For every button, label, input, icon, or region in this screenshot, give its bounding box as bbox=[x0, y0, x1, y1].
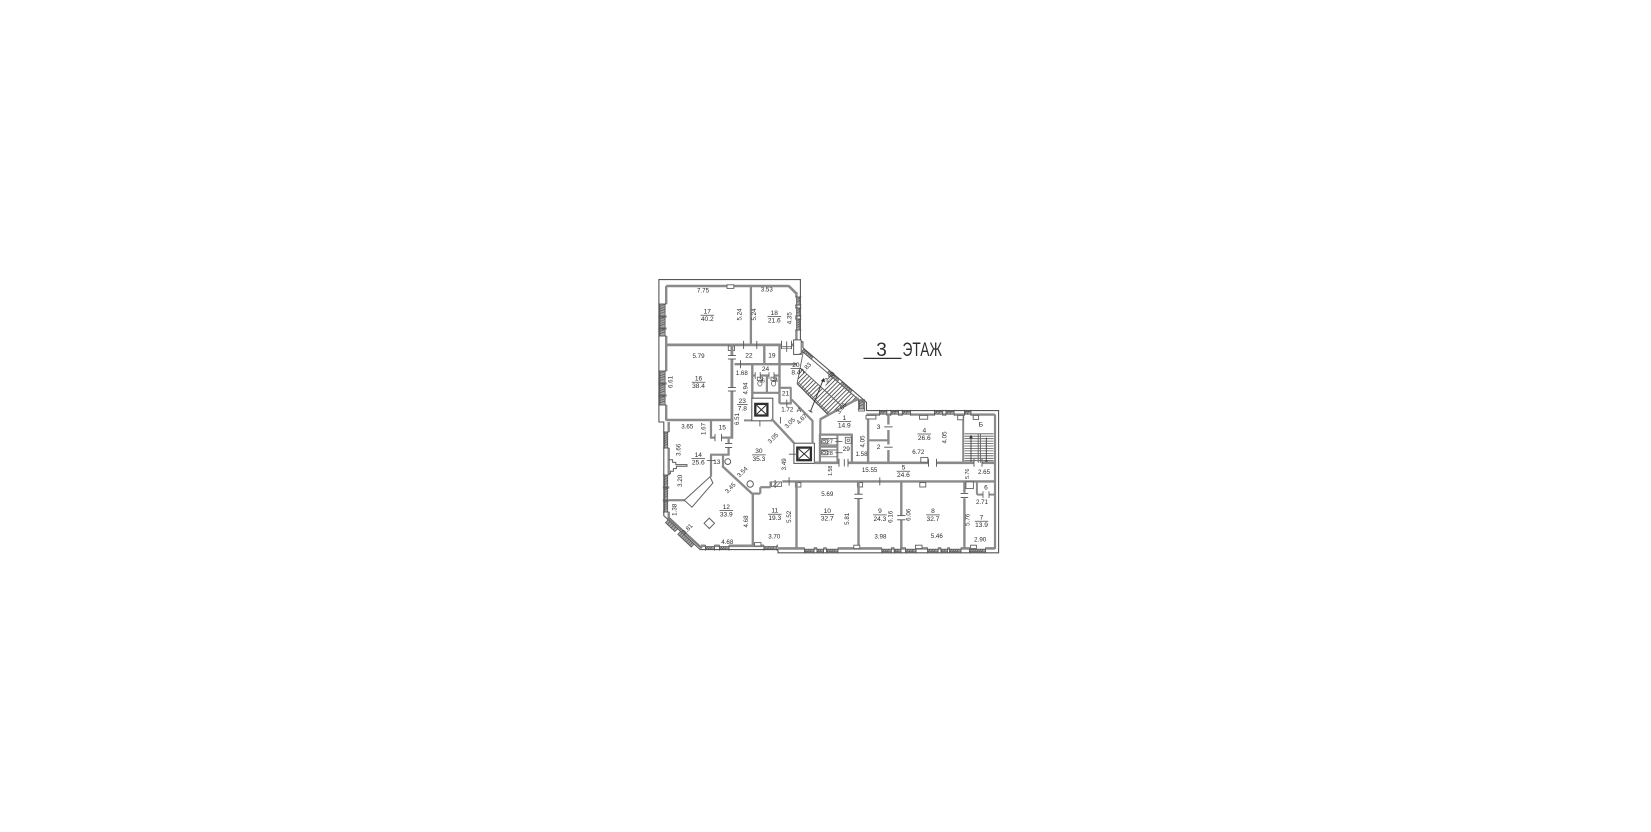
svg-text:11: 11 bbox=[771, 508, 778, 515]
svg-text:32.7: 32.7 bbox=[927, 516, 940, 523]
svg-text:20: 20 bbox=[792, 362, 800, 369]
svg-text:12: 12 bbox=[723, 504, 731, 511]
svg-text:8: 8 bbox=[931, 508, 935, 515]
svg-text:7.8: 7.8 bbox=[738, 405, 747, 412]
svg-text:30: 30 bbox=[755, 448, 763, 455]
svg-text:4.68: 4.68 bbox=[721, 539, 734, 546]
svg-text:4.05: 4.05 bbox=[859, 435, 866, 448]
svg-text:14: 14 bbox=[695, 452, 703, 459]
svg-text:9: 9 bbox=[878, 508, 882, 515]
svg-text:5.79: 5.79 bbox=[692, 353, 705, 360]
svg-text:6.72: 6.72 bbox=[912, 449, 925, 456]
svg-text:3.65: 3.65 bbox=[681, 423, 694, 430]
svg-text:2.90: 2.90 bbox=[974, 536, 987, 543]
svg-text:1: 1 bbox=[842, 415, 846, 422]
svg-text:5.76: 5.76 bbox=[964, 513, 971, 526]
svg-text:1.58: 1.58 bbox=[828, 466, 834, 476]
svg-text:24: 24 bbox=[762, 366, 770, 373]
svg-text:15.55: 15.55 bbox=[862, 467, 878, 474]
svg-text:25.6: 25.6 bbox=[692, 460, 705, 467]
svg-text:1.68: 1.68 bbox=[736, 370, 749, 377]
svg-text:5.46: 5.46 bbox=[931, 533, 944, 540]
svg-text:21.6: 21.6 bbox=[768, 318, 781, 325]
svg-text:15: 15 bbox=[719, 424, 727, 431]
svg-text:1.38: 1.38 bbox=[671, 503, 678, 516]
svg-text:5.69: 5.69 bbox=[821, 491, 834, 498]
svg-text:2.71: 2.71 bbox=[976, 499, 989, 506]
svg-text:35.3: 35.3 bbox=[752, 456, 765, 463]
svg-text:3.20: 3.20 bbox=[677, 474, 684, 487]
svg-text:5.76: 5.76 bbox=[965, 469, 971, 479]
svg-text:2.65: 2.65 bbox=[978, 469, 991, 476]
svg-text:23: 23 bbox=[739, 398, 747, 405]
svg-text:13.9: 13.9 bbox=[975, 522, 988, 529]
svg-text:18: 18 bbox=[771, 310, 779, 317]
svg-text:5: 5 bbox=[902, 465, 906, 472]
svg-text:19: 19 bbox=[768, 353, 776, 360]
svg-text:4: 4 bbox=[922, 427, 926, 434]
svg-text:1.72: 1.72 bbox=[781, 406, 794, 413]
svg-text:4.35: 4.35 bbox=[786, 312, 793, 325]
svg-text:32.7: 32.7 bbox=[821, 516, 834, 523]
svg-text:А: А bbox=[797, 407, 802, 414]
svg-text:27: 27 bbox=[827, 440, 833, 446]
svg-text:38.4: 38.4 bbox=[692, 383, 705, 390]
svg-text:4.94: 4.94 bbox=[742, 382, 749, 395]
svg-text:ЭТАЖ: ЭТАЖ bbox=[903, 340, 943, 361]
svg-text:7.75: 7.75 bbox=[697, 287, 710, 294]
svg-text:3.66: 3.66 bbox=[675, 443, 682, 456]
svg-text:2: 2 bbox=[877, 444, 881, 451]
svg-text:22: 22 bbox=[745, 353, 753, 360]
svg-text:6: 6 bbox=[984, 485, 988, 492]
svg-text:33.9: 33.9 bbox=[720, 511, 733, 518]
svg-text:1.58: 1.58 bbox=[855, 451, 868, 458]
svg-text:1.67: 1.67 bbox=[700, 422, 707, 435]
svg-text:6.51: 6.51 bbox=[734, 412, 741, 425]
svg-text:5.52: 5.52 bbox=[786, 510, 793, 523]
svg-text:4.68: 4.68 bbox=[743, 515, 750, 528]
svg-text:4.05: 4.05 bbox=[941, 431, 948, 444]
svg-text:6.06: 6.06 bbox=[905, 508, 912, 521]
svg-text:26: 26 bbox=[759, 379, 765, 385]
svg-text:21: 21 bbox=[782, 390, 790, 397]
svg-text:24.6: 24.6 bbox=[897, 472, 910, 479]
svg-text:Б: Б bbox=[979, 421, 984, 428]
svg-text:25: 25 bbox=[772, 378, 778, 384]
svg-text:24.3: 24.3 bbox=[873, 516, 886, 523]
svg-text:6.61: 6.61 bbox=[667, 375, 674, 388]
svg-text:17: 17 bbox=[704, 309, 712, 316]
svg-text:26.6: 26.6 bbox=[918, 435, 931, 442]
svg-text:19.3: 19.3 bbox=[768, 515, 781, 522]
svg-text:13: 13 bbox=[713, 459, 721, 466]
svg-text:28: 28 bbox=[827, 451, 833, 457]
svg-text:5.81: 5.81 bbox=[844, 512, 851, 525]
svg-text:3.53: 3.53 bbox=[761, 286, 774, 293]
svg-text:3: 3 bbox=[877, 424, 881, 431]
svg-text:10: 10 bbox=[824, 508, 832, 515]
svg-text:14.9: 14.9 bbox=[838, 423, 851, 430]
svg-text:3.70: 3.70 bbox=[768, 534, 781, 541]
svg-text:3.49: 3.49 bbox=[781, 458, 788, 471]
svg-text:6.16: 6.16 bbox=[887, 510, 894, 523]
svg-text:3.98: 3.98 bbox=[874, 534, 887, 541]
svg-text:29: 29 bbox=[843, 446, 851, 453]
svg-text:40.2: 40.2 bbox=[701, 316, 714, 323]
svg-text:16: 16 bbox=[695, 376, 703, 383]
svg-text:5.24: 5.24 bbox=[751, 308, 758, 321]
svg-text:5.24: 5.24 bbox=[736, 308, 743, 321]
svg-text:7: 7 bbox=[980, 515, 984, 522]
